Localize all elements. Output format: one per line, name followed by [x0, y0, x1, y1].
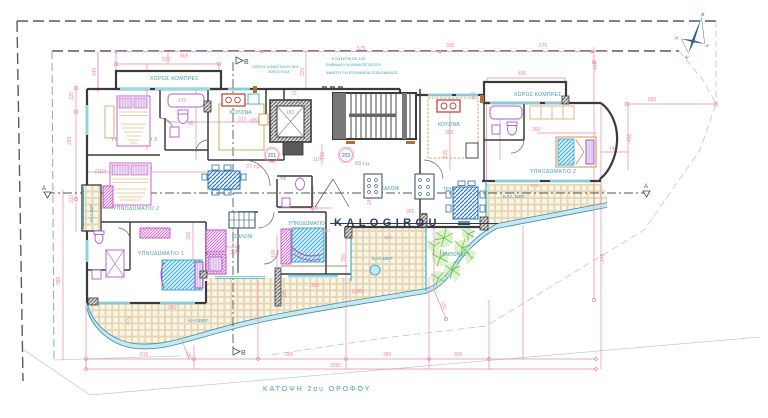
svg-text:404: 404: [593, 61, 599, 70]
svg-text:120: 120: [69, 91, 75, 100]
svg-text:B: B: [244, 59, 249, 66]
svg-text:350: 350: [285, 352, 294, 358]
svg-text:ΕΜΒΑΔΟΥ ΚΛΙΜΑΚΟΣΤΑΣΙΟΥ: ΕΜΒΑΔΟΥ ΚΛΙΜΑΚΟΣΤΑΣΙΟΥ: [326, 62, 382, 67]
svg-text:520: 520: [162, 57, 171, 63]
svg-text:310: 310: [238, 117, 247, 123]
svg-text:245: 245: [600, 253, 606, 262]
svg-text:865: 865: [180, 54, 189, 60]
svg-text:ΥΠΝΟΔΩΜΑΤΙΟ 1: ΥΠΝΟΔΩΜΑΤΙΟ 1: [138, 251, 184, 257]
svg-text:575: 575: [531, 183, 539, 188]
svg-text:ΧΩΡΟΣ ΚΑΘΙΣΤΙΚΟΥ ΑΙΘ.: ΧΩΡΟΣ ΚΑΘΙΣΤΙΚΟΥ ΑΙΘ.: [252, 64, 300, 69]
svg-text:A: A: [644, 184, 648, 190]
svg-text:575: 575: [539, 43, 548, 49]
svg-text:Τ.Ε: Τ.Ε: [280, 176, 286, 181]
svg-text:170: 170: [178, 98, 187, 104]
svg-text:ΕΞΩΤΕΡΙΚΩΣ 105: ΕΞΩΤΕΡΙΚΩΣ 105: [332, 56, 366, 61]
svg-text:A: A: [42, 186, 46, 192]
svg-text:ΚΑΛ.ΒΕΡ.: ΚΑΛ.ΒΕΡ.: [372, 256, 393, 262]
svg-text:583: 583: [648, 97, 657, 103]
svg-text:ΑΝΘΩΝΑΣ: ΑΝΘΩΝΑΣ: [442, 252, 467, 258]
svg-text:(110): (110): [95, 169, 107, 175]
svg-text:430: 430: [627, 133, 633, 142]
svg-text:395: 395: [446, 43, 455, 49]
svg-text:203: 203: [342, 153, 351, 159]
svg-text:ΚΑΛ.ΒΕΡ: ΚΑΛ.ΒΕΡ: [89, 204, 94, 222]
svg-text:ΧΩΡΟΣ ΚΟΜΠΡΕΣ: ΧΩΡΟΣ ΚΟΜΠΡΕΣ: [514, 92, 562, 98]
svg-text:575: 575: [357, 46, 366, 52]
svg-text:ΚΑΤΟΨΗ 2ου ΟΡΟΦΟΥ: ΚΑΤΟΨΗ 2ου ΟΡΟΦΟΥ: [263, 386, 371, 393]
svg-text:70: 70: [291, 91, 297, 97]
svg-text:ΧΩΡΟΣ ΚΛΙΜ.: ΧΩΡΟΣ ΚΛΙΜ.: [268, 70, 290, 74]
svg-text:355: 355: [230, 250, 239, 256]
svg-text:ΚΑΛ.ΒΕΡ.: ΚΑΛ.ΒΕΡ.: [188, 318, 209, 324]
svg-text:B: B: [241, 350, 246, 357]
svg-text:ΚΟΥΖΙΝΑ: ΚΟΥΖΙΝΑ: [230, 110, 252, 116]
svg-text:201: 201: [268, 153, 277, 159]
svg-text:ΥΠΝΟΔΩΜΑΤΙΟ: ΥΠΝΟΔΩΜΑΤΙΟ: [288, 221, 325, 227]
svg-text:390: 390: [311, 283, 320, 289]
svg-text:ΑΝΑΠΤΥΞΗ ΕΠΙΦΑΝΕΙΑ ΣΠΕΙΟΜΑΔΟΣ: ΑΝΑΠΤΥΞΗ ΕΠΙΦΑΝΕΙΑ ΣΠΕΙΟΜΑΔΟΣ: [326, 70, 398, 75]
svg-text:2595: 2595: [330, 363, 341, 369]
svg-text:83 τ.μ.: 83 τ.μ.: [355, 161, 371, 167]
svg-text:365: 365: [406, 209, 415, 215]
svg-text:110: 110: [313, 157, 321, 163]
svg-text:400: 400: [518, 71, 527, 77]
svg-text:390: 390: [384, 235, 392, 240]
svg-text:ΚΟΥΖΙΝΑ: ΚΟΥΖΙΝΑ: [438, 122, 460, 128]
svg-text:300: 300: [445, 130, 454, 136]
svg-text:360: 360: [532, 127, 541, 133]
svg-text:ΧΩΡΟΣ ΚΟΜΠΡΕΣ: ΧΩΡΟΣ ΚΟΜΠΡΕΣ: [150, 76, 199, 82]
svg-text:115: 115: [282, 290, 288, 298]
svg-text:350: 350: [186, 231, 192, 240]
svg-text:ΣΑΛΟΝΙ: ΣΑΛΟΝΙ: [234, 234, 253, 240]
svg-text:300: 300: [454, 352, 463, 358]
svg-text:ΥΠΝΟΔΩΜΑΤΙΟ 2: ΥΠΝΟΔΩΜΑΤΙΟ 2: [113, 206, 159, 212]
svg-text:ΣΑΛΟΝΙ: ΣΑΛΟΝΙ: [381, 186, 400, 192]
svg-text:(245): (245): [352, 289, 364, 295]
svg-text:180: 180: [286, 110, 295, 116]
svg-text:97 τ.μ.: 97 τ.μ.: [246, 164, 262, 170]
svg-text:250: 250: [341, 253, 347, 262]
svg-text:950: 950: [168, 305, 177, 311]
svg-text:620: 620: [443, 149, 449, 158]
svg-text:310: 310: [69, 194, 75, 203]
svg-text:265: 265: [67, 136, 73, 145]
svg-text:KALOGIROU: KALOGIROU: [334, 217, 441, 229]
svg-text:320: 320: [300, 67, 306, 76]
svg-text:ΥΠΝΟΔΩΜΑΤΙΟ 2: ΥΠΝΟΔΩΜΑΤΙΟ 2: [530, 169, 576, 175]
svg-text:85: 85: [188, 121, 194, 127]
svg-text:340: 340: [92, 67, 98, 76]
svg-text:330: 330: [322, 228, 330, 233]
svg-text:390: 390: [383, 352, 392, 358]
svg-text:ΚΑΛ. ΒΕΡ.: ΚΑΛ. ΒΕΡ.: [503, 194, 526, 200]
svg-text:(95): (95): [250, 118, 259, 124]
svg-text:615: 615: [140, 352, 149, 358]
svg-text:385: 385: [56, 276, 62, 285]
